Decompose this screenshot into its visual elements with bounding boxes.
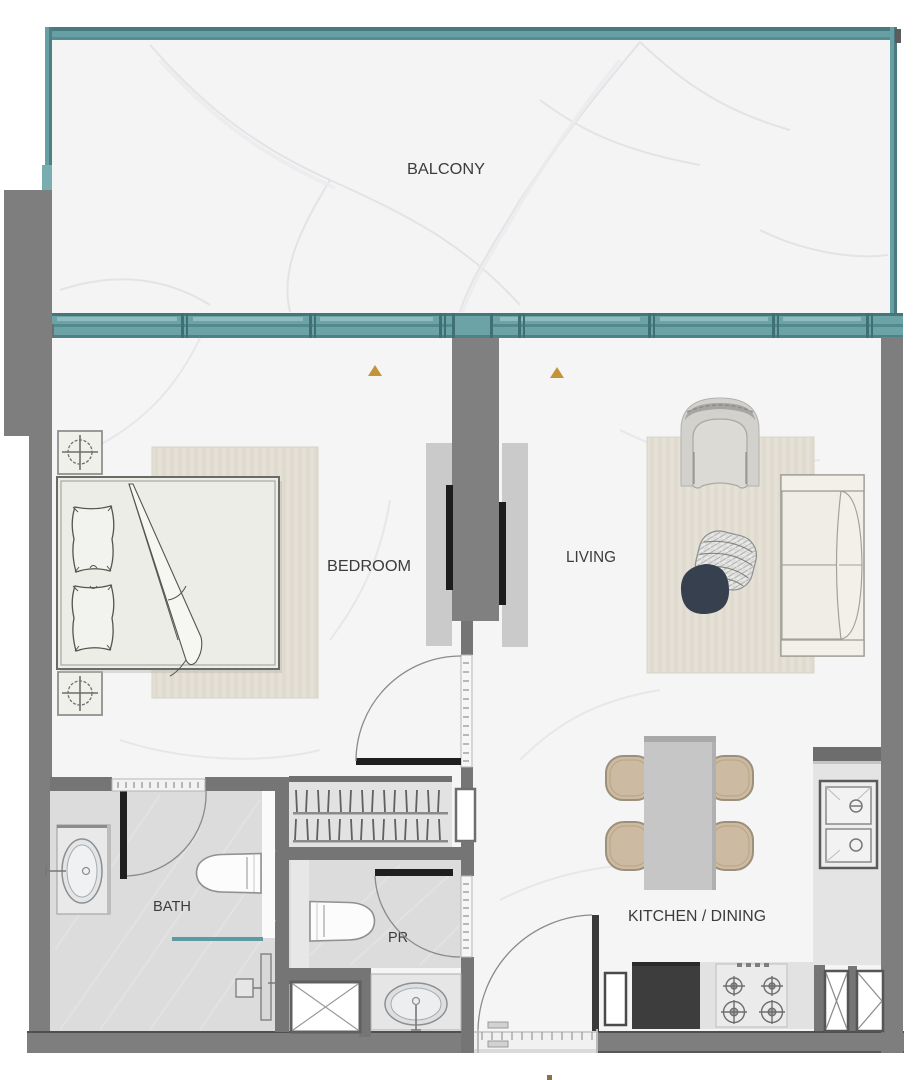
svg-text:BEDROOM: BEDROOM <box>327 558 411 575</box>
svg-text:BALCONY: BALCONY <box>407 161 485 178</box>
svg-text:KITCHEN / DINING: KITCHEN / DINING <box>628 908 766 925</box>
svg-text:LIVING: LIVING <box>566 549 616 566</box>
svg-text:BATH: BATH <box>153 898 191 915</box>
